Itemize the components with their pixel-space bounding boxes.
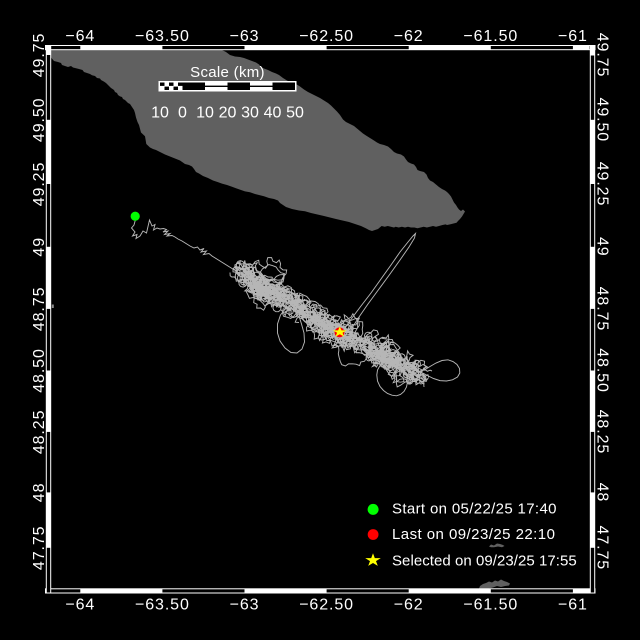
- svg-text:Last on 09/23/25 22:10: Last on 09/23/25 22:10: [392, 526, 555, 543]
- svg-text:−62: −62: [394, 596, 424, 613]
- svg-text:48.75: 48.75: [31, 287, 48, 332]
- svg-text:49.75: 49.75: [594, 33, 611, 78]
- svg-text:−63: −63: [230, 28, 260, 45]
- svg-text:48: 48: [31, 483, 48, 503]
- svg-text:−62.50: −62.50: [299, 596, 354, 613]
- svg-text:30: 30: [241, 105, 259, 122]
- svg-text:48.25: 48.25: [31, 410, 48, 455]
- svg-text:48: 48: [594, 483, 611, 503]
- svg-text:50: 50: [286, 105, 304, 122]
- svg-text:−64: −64: [65, 28, 95, 45]
- svg-text:−61: −61: [558, 596, 588, 613]
- svg-text:47.75: 47.75: [31, 526, 48, 571]
- svg-text:Start on 05/22/25 17:40: Start on 05/22/25 17:40: [392, 500, 557, 517]
- svg-text:49.25: 49.25: [594, 162, 611, 207]
- svg-text:48.50: 48.50: [594, 348, 611, 393]
- svg-text:−61.50: −61.50: [463, 596, 518, 613]
- svg-text:−61.50: −61.50: [463, 28, 518, 45]
- svg-text:49.50: 49.50: [594, 98, 611, 143]
- svg-text:−62.50: −62.50: [299, 28, 354, 45]
- svg-text:0: 0: [178, 105, 187, 122]
- svg-text:10: 10: [196, 105, 214, 122]
- svg-text:−63.50: −63.50: [135, 596, 190, 613]
- svg-text:Selected on 09/23/25 17:55: Selected on 09/23/25 17:55: [392, 552, 577, 569]
- svg-text:−63.50: −63.50: [135, 28, 190, 45]
- svg-text:49.75: 49.75: [31, 33, 48, 78]
- svg-text:−61: −61: [558, 28, 588, 45]
- svg-text:−63: −63: [230, 596, 260, 613]
- svg-text:40: 40: [264, 105, 282, 122]
- svg-text:48.25: 48.25: [594, 410, 611, 455]
- svg-text:47.75: 47.75: [594, 526, 611, 571]
- svg-text:−64: −64: [65, 596, 95, 613]
- svg-text:49: 49: [594, 237, 611, 257]
- svg-text:49: 49: [31, 237, 48, 257]
- svg-text:49.50: 49.50: [31, 98, 48, 143]
- svg-text:10: 10: [151, 105, 169, 122]
- svg-text:−62: −62: [394, 28, 424, 45]
- svg-text:Scale (km): Scale (km): [190, 64, 265, 81]
- svg-text:48.75: 48.75: [594, 287, 611, 332]
- svg-text:48.50: 48.50: [31, 348, 48, 393]
- svg-text:20: 20: [219, 105, 237, 122]
- svg-text:49.25: 49.25: [31, 162, 48, 207]
